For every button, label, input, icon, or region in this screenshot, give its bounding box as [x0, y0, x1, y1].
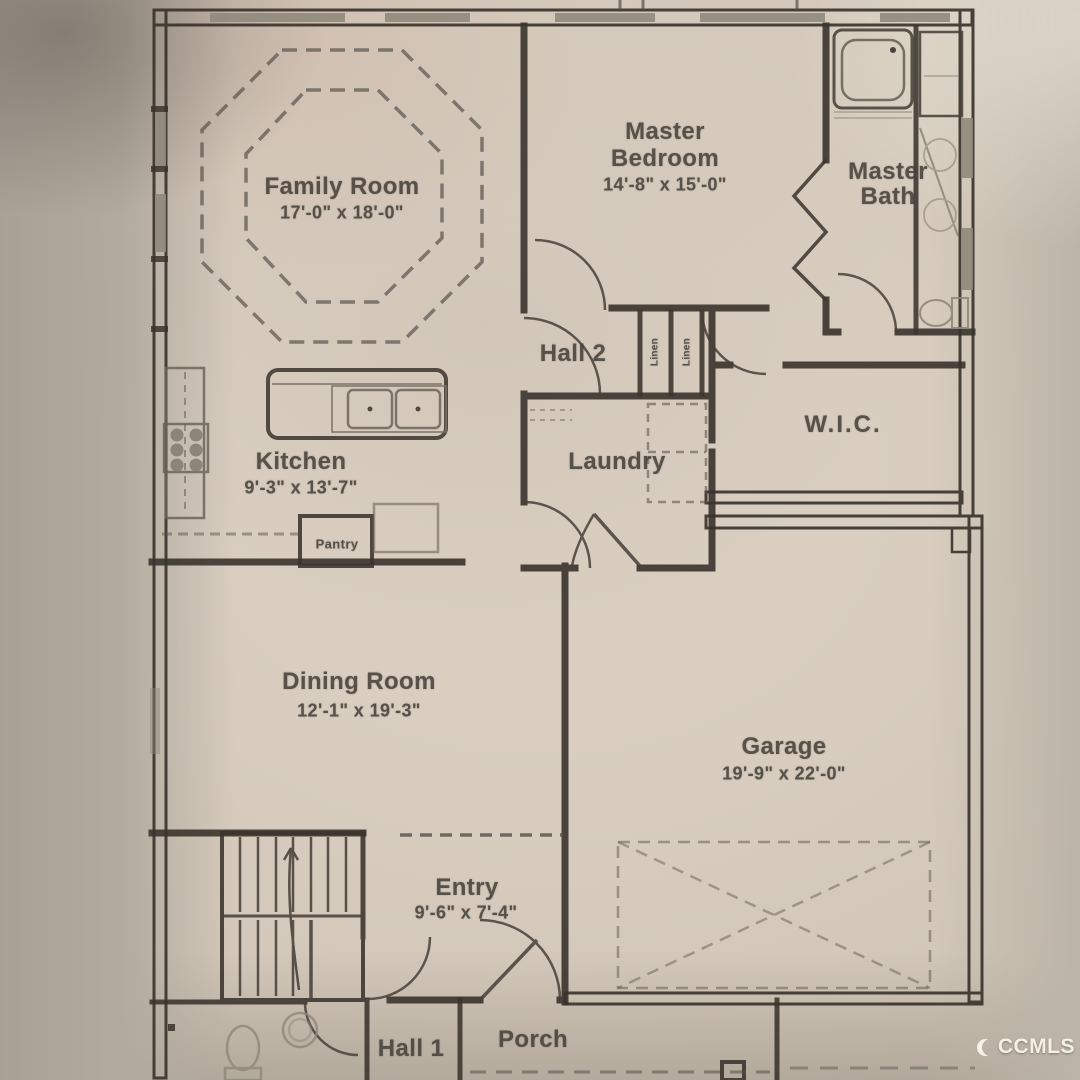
room-label-master-bath-1: Master	[848, 158, 928, 186]
closet-label-pantry: Pantry	[316, 537, 359, 552]
room-label-laundry: Laundry	[568, 448, 665, 476]
ccmls-logo-icon	[977, 1039, 994, 1056]
powder-room-fixtures	[225, 1013, 317, 1080]
refrigerator	[374, 504, 438, 552]
room-label-hall-2: Hall 2	[540, 340, 606, 368]
room-label-kitchen: Kitchen	[256, 448, 347, 476]
room-label-hall-1: Hall 1	[378, 1035, 444, 1063]
room-label-garage: Garage	[741, 733, 826, 761]
room-dims-garage: 19'-9" x 22'-0"	[722, 764, 846, 785]
room-label-master-bath-2: Bath	[861, 183, 916, 211]
linen-shelves	[920, 32, 962, 116]
ccmls-watermark: CCMLS	[977, 1035, 1075, 1059]
room-label-wic: W.I.C.	[804, 411, 881, 439]
room-label-entry: Entry	[435, 874, 498, 902]
stairs	[222, 837, 363, 1000]
room-dims-master-bedroom: 14'-8" x 15'-0"	[603, 175, 727, 196]
room-label-dining-room: Dining Room	[282, 668, 436, 696]
bath-opening-zigzag	[794, 160, 826, 300]
room-label-master-bedroom-2: Bedroom	[611, 145, 719, 173]
room-dims-entry: 9'-6" x 7'-4"	[415, 903, 518, 924]
room-dims-family-room: 17'-0" x 18'-0"	[280, 203, 404, 224]
room-dims-dining-room: 12'-1" x 19'-3"	[297, 701, 421, 722]
room-label-family-room: Family Room	[264, 173, 419, 201]
closet-label-linen-left: Linen	[650, 338, 661, 366]
room-dims-kitchen: 9'-3" x 13'-7"	[244, 478, 357, 499]
floorplan-photo: Family Room 17'-0" x 18'-0" Master Bedro…	[0, 0, 1080, 1080]
room-label-porch: Porch	[498, 1026, 568, 1054]
toilet-bowl	[227, 1026, 259, 1070]
toilet-bowl	[920, 300, 952, 326]
ccmls-watermark-text: CCMLS	[998, 1035, 1075, 1059]
room-label-master-bedroom-1: Master	[625, 118, 705, 146]
closet-label-linen-right: Linen	[682, 338, 693, 366]
